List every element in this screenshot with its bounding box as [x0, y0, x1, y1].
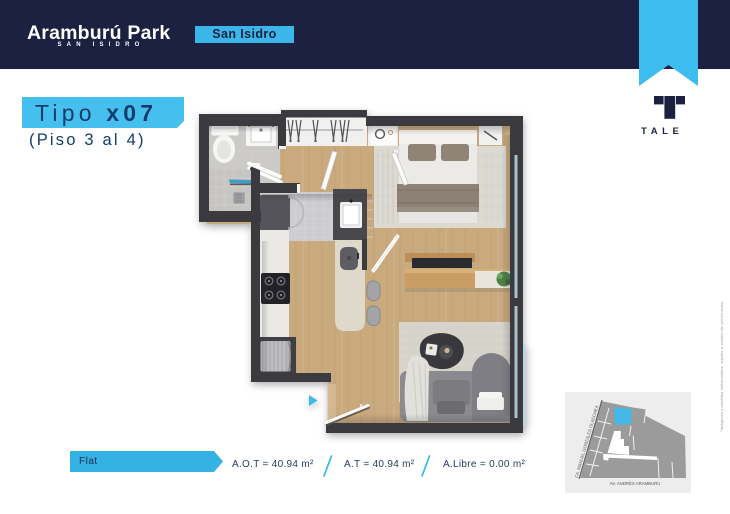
- svg-text:AV. ANDRÉS ARAMBURU: AV. ANDRÉS ARAMBURU: [610, 481, 661, 486]
